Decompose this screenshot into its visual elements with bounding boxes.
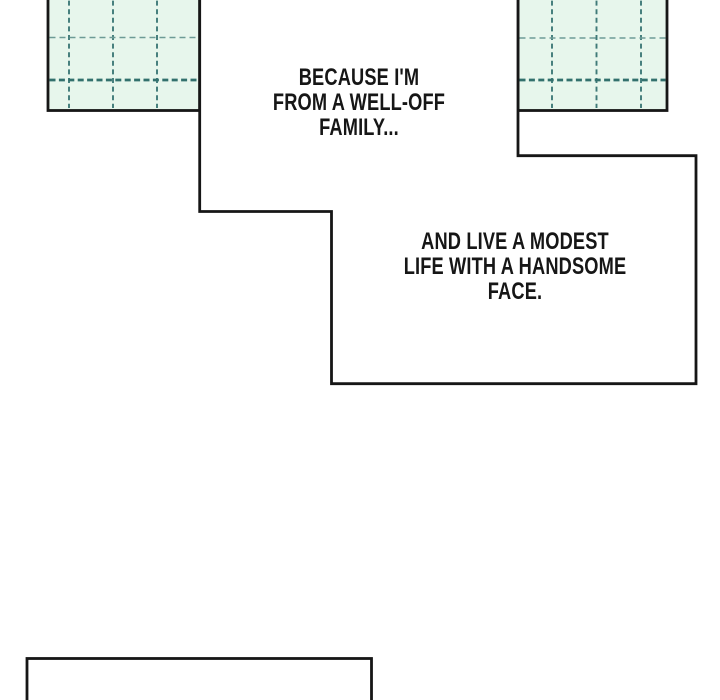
webtoon-page: BECAUSE I'M FROM A WELL-OFF FAMILY... AN… [0, 0, 720, 700]
speech-line: FAMILY... [237, 115, 480, 140]
speech-line: FACE. [377, 279, 652, 304]
speech-line: LIFE WITH A HANDSOME [377, 254, 652, 279]
speech-line: AND LIVE A MODEST [377, 229, 652, 254]
speech-line: BECAUSE I'M [237, 65, 480, 90]
window-left-glass [48, 0, 200, 111]
window-right [518, 0, 667, 111]
speech-bubble-a-text: BECAUSE I'M FROM A WELL-OFF FAMILY... [237, 65, 480, 140]
speech-line: FROM A WELL-OFF [237, 90, 480, 115]
window-left [48, 0, 200, 111]
speech-bubble-b-text: AND LIVE A MODEST LIFE WITH A HANDSOME F… [377, 229, 652, 304]
window-right-glass [518, 0, 667, 111]
bottom-panel-border [27, 659, 372, 700]
